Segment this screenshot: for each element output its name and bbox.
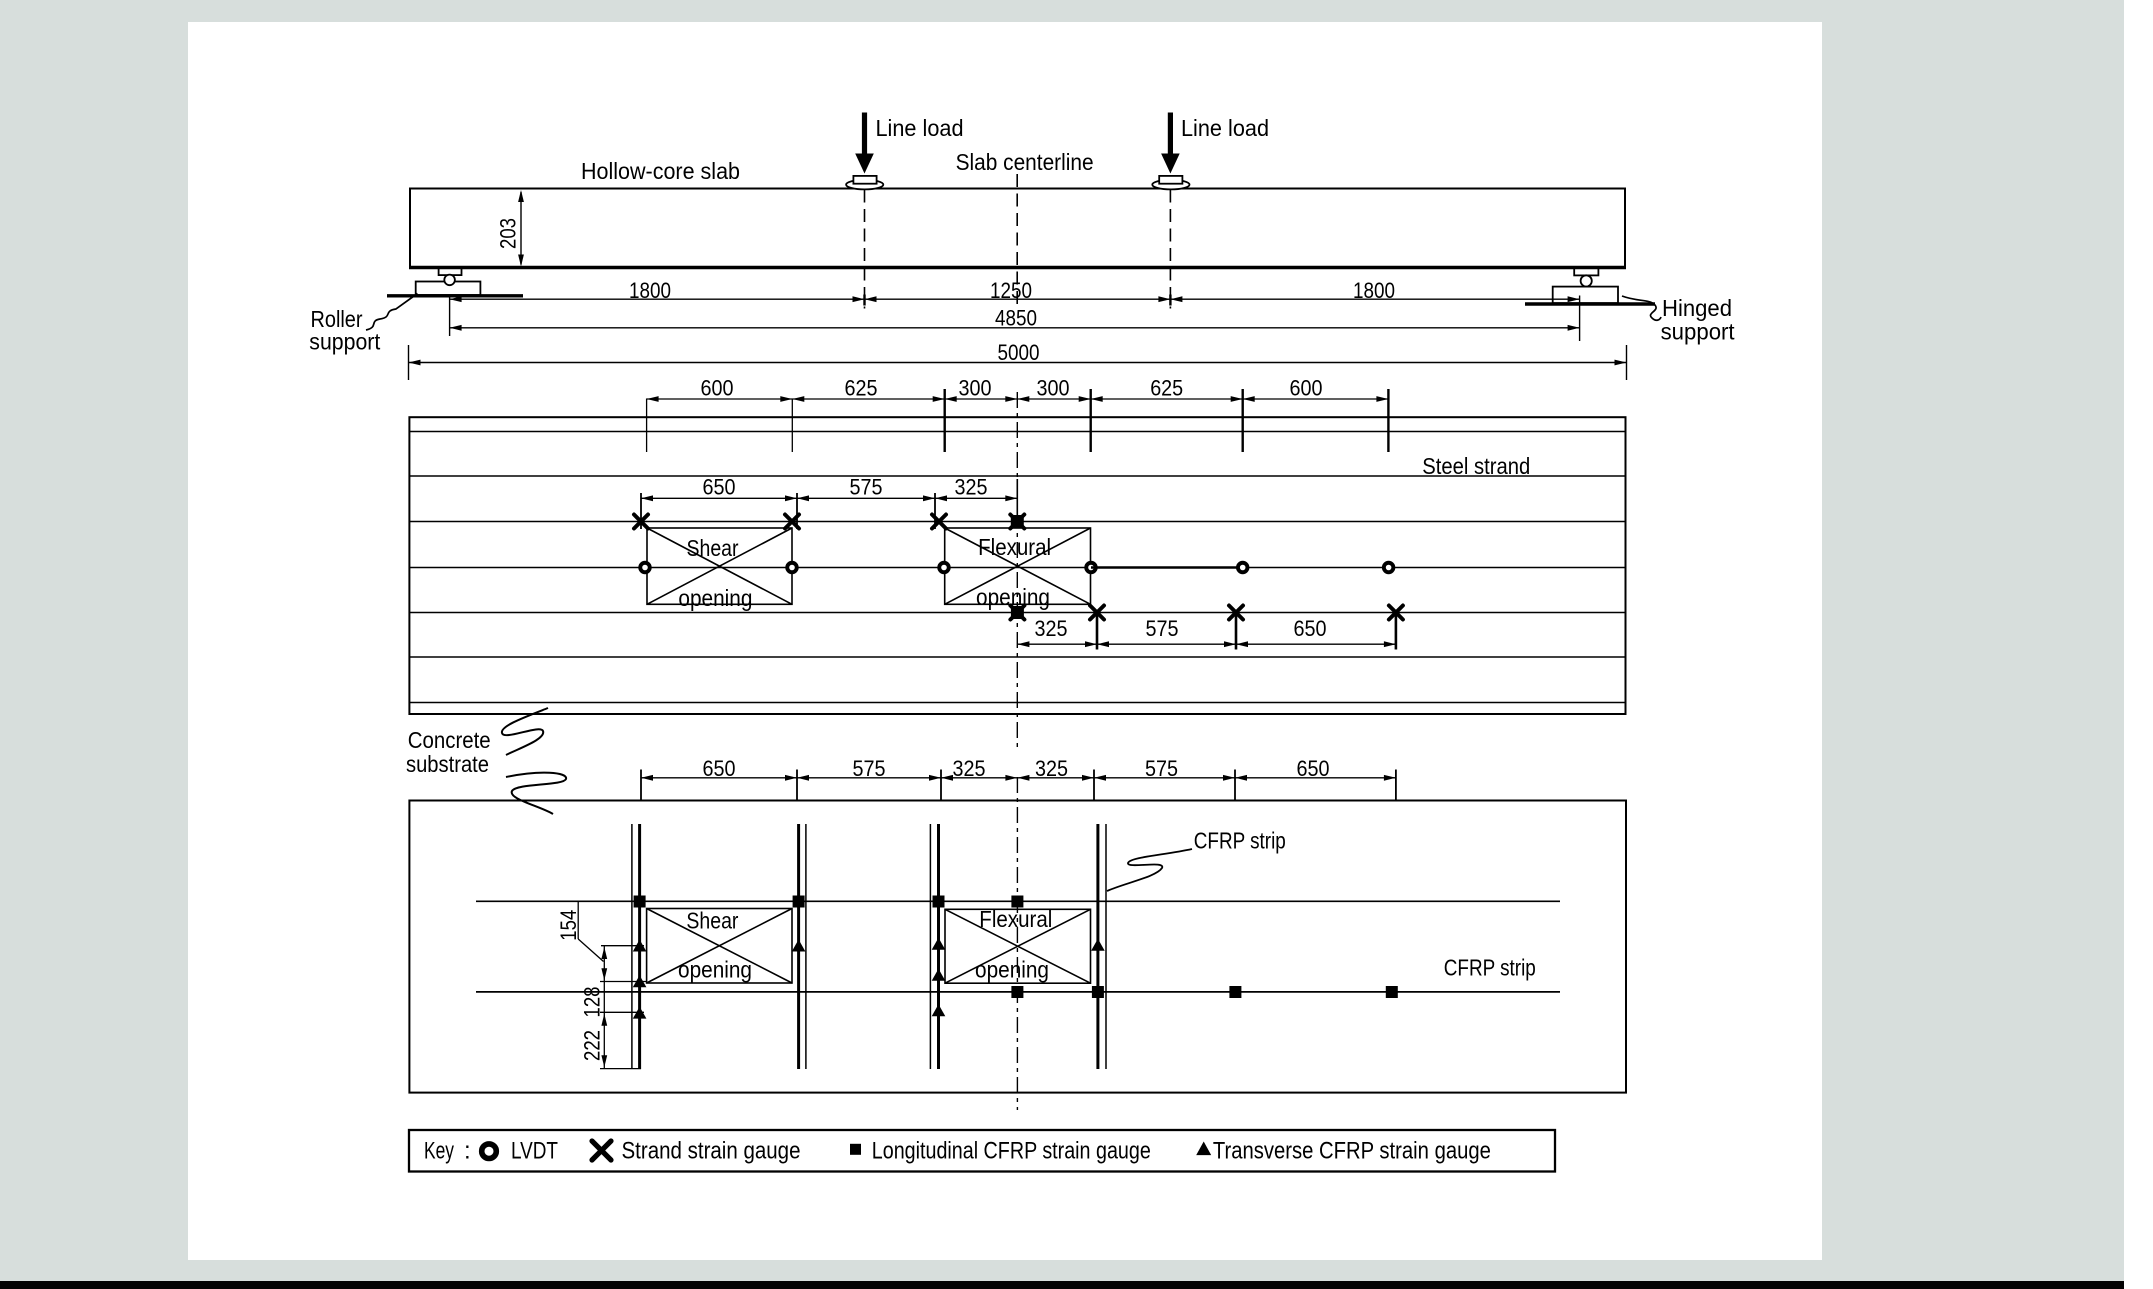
svg-text:600: 600 — [701, 376, 734, 401]
svg-text:LVDT: LVDT — [511, 1137, 558, 1164]
svg-text:650: 650 — [1297, 756, 1330, 781]
svg-text:1250: 1250 — [990, 278, 1032, 303]
svg-text:1800: 1800 — [1353, 278, 1395, 303]
svg-text:support: support — [309, 329, 381, 355]
svg-text:154: 154 — [556, 910, 581, 941]
svg-text:625: 625 — [845, 376, 878, 401]
svg-text::: : — [464, 1137, 471, 1164]
svg-text:substrate: substrate — [406, 751, 489, 777]
svg-text:Hollow-core slab: Hollow-core slab — [581, 158, 740, 184]
svg-text:Key: Key — [424, 1137, 454, 1164]
svg-text:Strand strain gauge: Strand strain gauge — [622, 1137, 801, 1164]
svg-text:325: 325 — [955, 475, 988, 500]
svg-text:575: 575 — [850, 475, 883, 500]
svg-text:575: 575 — [1146, 616, 1179, 641]
svg-text:625: 625 — [1150, 376, 1183, 401]
svg-text:Concrete: Concrete — [408, 727, 491, 753]
svg-text:CFRP strip: CFRP strip — [1194, 828, 1286, 854]
svg-text:support: support — [1661, 319, 1736, 345]
svg-text:222: 222 — [580, 1030, 605, 1061]
svg-text:5000: 5000 — [998, 340, 1040, 365]
svg-text:575: 575 — [853, 756, 886, 781]
svg-text:Shear: Shear — [686, 908, 738, 934]
svg-text:325: 325 — [953, 756, 986, 781]
svg-text:opening: opening — [678, 585, 752, 611]
svg-text:650: 650 — [1294, 616, 1327, 641]
svg-text:Line load: Line load — [1181, 115, 1269, 141]
svg-text:Shear: Shear — [687, 535, 739, 561]
svg-text:Transverse CFRP strain gauge: Transverse CFRP strain gauge — [1213, 1137, 1491, 1164]
svg-text:128: 128 — [580, 987, 605, 1018]
svg-text:Flexural: Flexural — [979, 906, 1052, 932]
svg-text:4850: 4850 — [995, 306, 1037, 331]
svg-text:325: 325 — [1035, 616, 1068, 641]
svg-text:Hinged: Hinged — [1662, 295, 1732, 321]
svg-text:600: 600 — [1290, 376, 1323, 401]
svg-text:Line load: Line load — [876, 115, 964, 141]
svg-text:300: 300 — [959, 376, 992, 401]
svg-text:Longitudinal CFRP strain gauge: Longitudinal CFRP strain gauge — [872, 1137, 1151, 1164]
svg-text:Steel strand: Steel strand — [1422, 453, 1530, 479]
svg-text:300: 300 — [1037, 376, 1070, 401]
svg-text:opening: opening — [975, 957, 1049, 983]
svg-text:1800: 1800 — [629, 278, 671, 303]
svg-text:325: 325 — [1035, 756, 1068, 781]
svg-text:opening: opening — [678, 957, 752, 983]
svg-text:CFRP strip: CFRP strip — [1444, 955, 1536, 981]
svg-text:Slab centerline: Slab centerline — [956, 149, 1094, 175]
svg-text:Flexural: Flexural — [978, 534, 1051, 560]
svg-text:575: 575 — [1145, 756, 1178, 781]
svg-text:650: 650 — [703, 756, 736, 781]
svg-text:203: 203 — [496, 218, 521, 249]
svg-text:650: 650 — [703, 475, 736, 500]
